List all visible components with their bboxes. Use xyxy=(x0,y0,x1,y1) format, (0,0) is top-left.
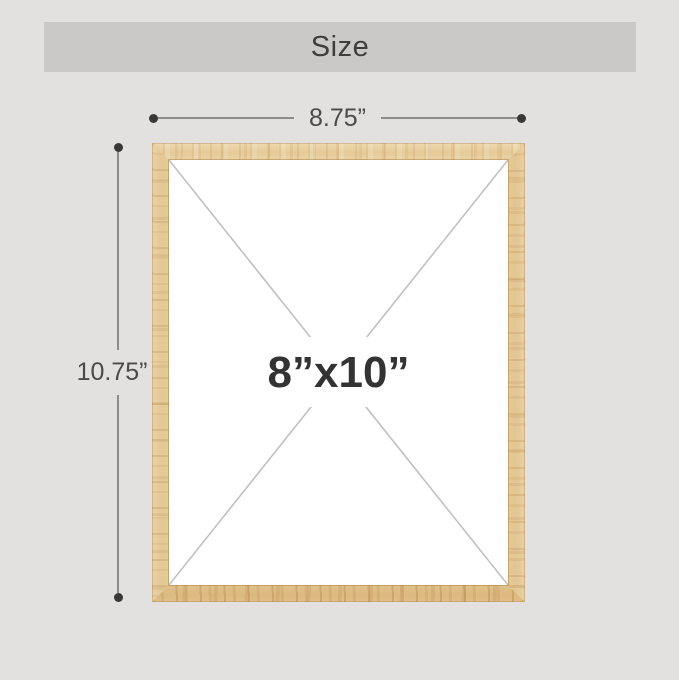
size-banner-label: Size xyxy=(311,31,369,64)
size-banner: Size xyxy=(44,22,636,72)
frame-rail-right xyxy=(508,143,525,602)
width-dimension-line-right xyxy=(381,117,517,119)
width-dimension-label: 8.75” xyxy=(309,106,366,131)
dimension-endpoint-dot-left xyxy=(149,114,158,123)
frame-size-label: 8”x10” xyxy=(268,348,410,398)
frame-rail-left xyxy=(152,143,169,602)
width-dimension-line-left xyxy=(158,117,294,119)
photo-area: 8”x10” xyxy=(169,160,508,585)
width-dimension: 8.75” xyxy=(149,109,526,127)
frame-rail-bottom xyxy=(152,585,525,602)
frame-rail-top xyxy=(152,143,525,160)
height-dimension: 10.75” xyxy=(95,143,141,602)
dimension-endpoint-dot-top xyxy=(114,143,123,152)
product-size-diagram: Size 8.75” 10.75” 8”x10” xyxy=(0,0,679,680)
dimension-endpoint-dot-bottom xyxy=(114,593,123,602)
height-dimension-label: 10.75” xyxy=(77,360,148,385)
picture-frame: 8”x10” xyxy=(152,143,525,602)
height-dimension-line-bottom xyxy=(117,395,119,593)
height-dimension-line-top xyxy=(117,152,119,350)
dimension-endpoint-dot-right xyxy=(517,114,526,123)
